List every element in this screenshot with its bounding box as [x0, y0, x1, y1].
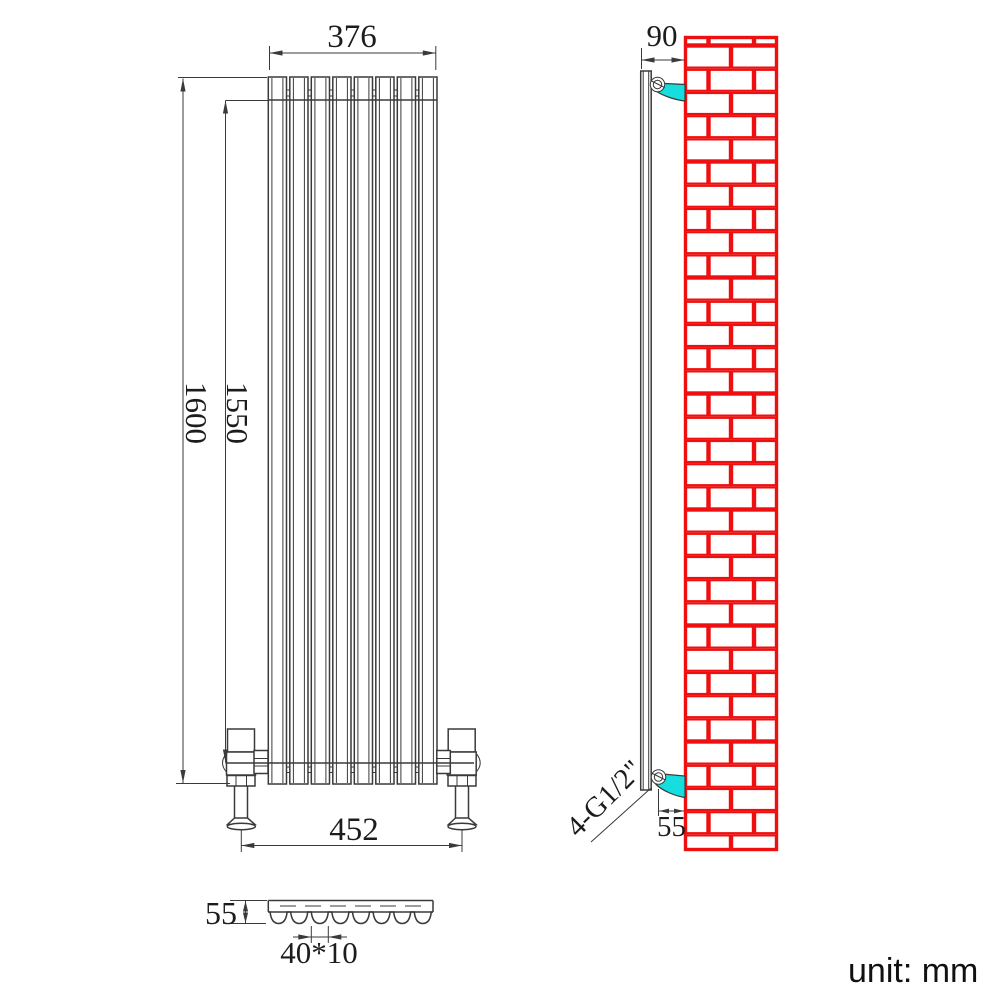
- dim-wall-distance: 90: [642, 18, 685, 69]
- dim-width-top: 376: [270, 19, 436, 70]
- dim-valve-centres: 452: [241, 812, 462, 852]
- right-valve: [437, 729, 480, 830]
- dim-height-inner-label: 1550: [220, 382, 255, 444]
- dim-width-top-label: 376: [327, 19, 377, 55]
- top-screw: [650, 77, 664, 91]
- dim-panel-section-label: 40*10: [280, 935, 358, 970]
- dim-valve-centres-label: 452: [329, 812, 379, 848]
- side-view: 90 55 4-G1/2": [560, 18, 686, 843]
- left-valve: [223, 729, 269, 830]
- unit-note: unit: mm: [848, 952, 978, 990]
- brick-wall: [685, 37, 777, 850]
- radiator-panels: [268, 77, 437, 784]
- drawing-canvas: 90 55 4-G1/2": [0, 0, 1001, 1001]
- bottom-screw: [651, 770, 665, 784]
- dim-height-inner: 1550: [220, 101, 268, 763]
- dim-bracket-offset-label: 55: [657, 811, 686, 843]
- dim-height-overall-label: 1600: [179, 382, 214, 444]
- dim-panel-section: 40*10: [280, 926, 358, 970]
- dim-depth-label: 55: [205, 895, 237, 931]
- dim-depth: 55: [205, 895, 267, 931]
- panel-section-profile: [268, 912, 433, 924]
- front-view: 376 1600 1550 452: [176, 19, 480, 852]
- connection-callout: 4-G1/2": [560, 754, 650, 843]
- dim-wall-distance-label: 90: [647, 18, 678, 53]
- technical-drawing: 90 55 4-G1/2": [0, 0, 1001, 1001]
- section-view: 55 40*10: [205, 895, 433, 970]
